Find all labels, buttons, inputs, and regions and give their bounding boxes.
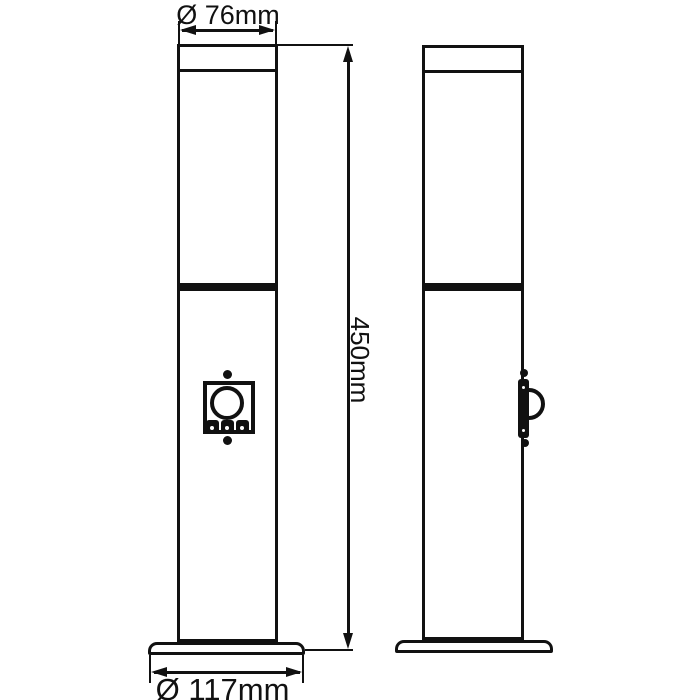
top-diameter-extension-right [275,21,277,46]
bar-dot [522,386,525,389]
front-post-body [177,44,278,642]
front-top-cap-line [180,69,275,72]
side-top-cap-line [425,70,521,73]
knob-dot [225,426,229,430]
front-mid-joint-band [180,283,275,291]
sensor-screw-bottom-icon [223,436,232,445]
sensor-bump-bottom-icon [521,439,529,447]
arrow-down-icon [343,633,353,649]
technical-drawing-canvas: Ø 76mm 450mm Ø 117mm [0,0,700,700]
base-diameter-label: Ø 117mm [135,672,310,700]
sensor-bar-profile-icon [518,379,529,438]
knob-dot [240,426,244,430]
sensor-knob-left-icon [206,420,219,433]
sensor-bump-top-icon [520,369,528,377]
sensor-knob-middle-icon [221,420,234,433]
height-extension-bottom [305,649,353,651]
knob-dot [210,426,214,430]
sensor-knob-right-icon [236,420,249,433]
arrow-left-icon [180,25,196,35]
height-label: 450mm [349,314,375,406]
arrow-right-icon [259,25,275,35]
side-mid-joint-band [425,283,521,291]
side-post-body [422,45,524,640]
arrow-up-icon [343,46,353,62]
height-extension-top [278,44,353,46]
pir-sensor-lens-icon [210,386,244,420]
sensor-screw-top-icon [223,370,232,379]
front-base-flange [148,642,305,655]
bar-dot [522,429,525,432]
side-base-flange [395,640,553,653]
